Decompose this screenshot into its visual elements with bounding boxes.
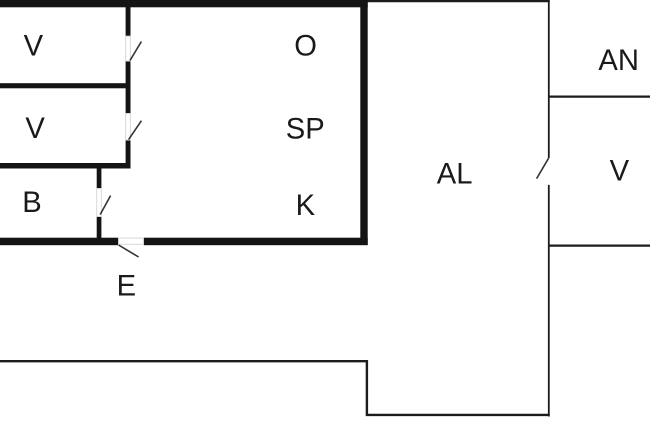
svg-text:V: V [610, 155, 630, 187]
svg-text:O: O [294, 31, 317, 63]
svg-text:SP: SP [286, 114, 325, 146]
svg-text:V: V [24, 31, 44, 63]
svg-text:E: E [117, 271, 136, 303]
svg-text:AN: AN [598, 45, 639, 77]
svg-text:K: K [296, 190, 316, 222]
svg-text:AL: AL [437, 159, 473, 191]
svg-text:B: B [22, 187, 41, 219]
svg-text:V: V [25, 113, 45, 145]
